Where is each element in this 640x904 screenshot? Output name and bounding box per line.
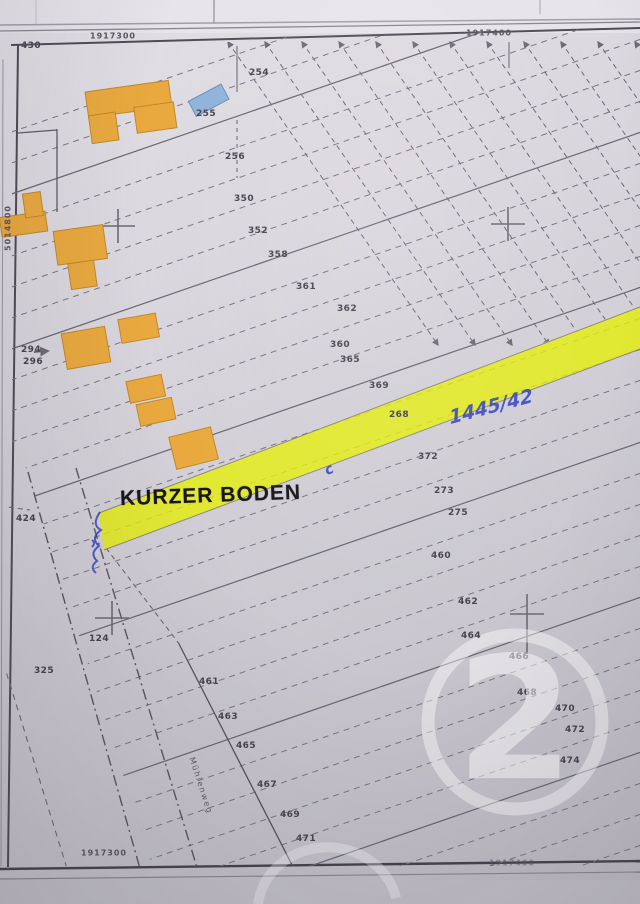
page-top-margin: [0, 0, 640, 33]
grid-label-top-right: 1917400: [466, 29, 512, 38]
building: [61, 326, 111, 369]
parcel-label-462: 462: [458, 597, 478, 607]
parcel-label-275: 275: [448, 508, 468, 518]
grid-label-top-left: 1917300: [90, 32, 136, 41]
parcel-label-358: 358: [268, 250, 288, 260]
parcel-label-254: 254: [249, 68, 269, 78]
building: [126, 374, 166, 403]
parcel-label-362: 362: [337, 304, 357, 314]
grid-label-bottom-right: 1917400: [489, 859, 535, 868]
parcel-label-465: 465: [236, 741, 256, 751]
parcel-label-325: 325: [34, 666, 54, 676]
parcel-label-124: 124: [89, 634, 109, 644]
parcel-label-468: 468: [517, 688, 537, 698]
grid-label-bottom-left: 1917300: [81, 849, 127, 858]
parcel-label-273: 273: [434, 486, 454, 496]
parcel-label-460: 460: [431, 551, 451, 561]
highlight-strip: [99, 307, 640, 550]
parcel-label-464: 464: [461, 631, 481, 641]
grid-ticks: [237, 42, 509, 178]
parcel-label-256: 256: [225, 152, 245, 162]
parcel-label-424: 424: [16, 514, 36, 524]
parcel-label-350: 350: [234, 194, 254, 204]
parcel-label-467: 467: [257, 780, 277, 790]
parcel-label-469: 469: [280, 810, 300, 820]
parcel-label-466: 466: [509, 652, 529, 662]
parcel-label-430: 430: [21, 41, 41, 51]
parcel-label-268: 268: [389, 410, 409, 420]
parcel-label-294: 294: [21, 345, 41, 355]
parcel-label-296: 296: [23, 357, 43, 367]
parcel-label-470: 470: [555, 704, 575, 714]
parcel-cross-lines: [228, 42, 640, 345]
building: [169, 427, 219, 469]
parcel-label-361: 361: [296, 282, 316, 292]
parcel-label-471: 471: [296, 834, 316, 844]
building: [136, 397, 176, 426]
map-graphics: [0, 0, 640, 904]
parcel-label-474: 474: [560, 756, 580, 766]
cadastral-map-photo: 1917300 1917400 1917300 1917400 5014800 …: [0, 0, 640, 904]
parcel-label-365: 365: [340, 355, 360, 365]
parcel-label-369: 369: [369, 381, 389, 391]
building: [53, 225, 111, 291]
buildings-layer: [0, 80, 229, 469]
parcel-label-461: 461: [199, 677, 219, 687]
parcel-label-463: 463: [218, 712, 238, 722]
building: [118, 313, 160, 343]
parcel-label-255: 255: [196, 109, 216, 119]
parcel-label-360: 360: [330, 340, 350, 350]
parcel-label-372: 372: [418, 452, 438, 462]
handwritten-scribble: [92, 512, 101, 573]
parcel-label-352: 352: [248, 226, 268, 236]
building: [85, 80, 177, 143]
parcel-label-472: 472: [565, 725, 585, 735]
grid-label-left-vertical: 5014800: [4, 205, 13, 251]
